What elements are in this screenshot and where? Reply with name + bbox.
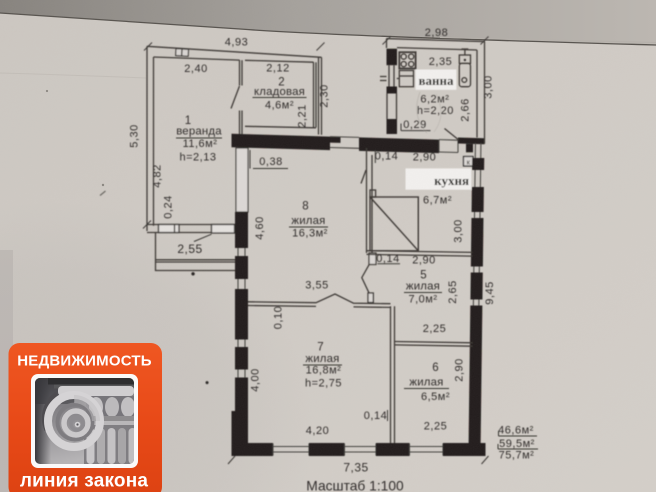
svg-text:НЕДВИЖИМОСТЬ: НЕДВИЖИМОСТЬ xyxy=(17,353,151,370)
svg-text:линия закона: линия закона xyxy=(20,471,149,492)
